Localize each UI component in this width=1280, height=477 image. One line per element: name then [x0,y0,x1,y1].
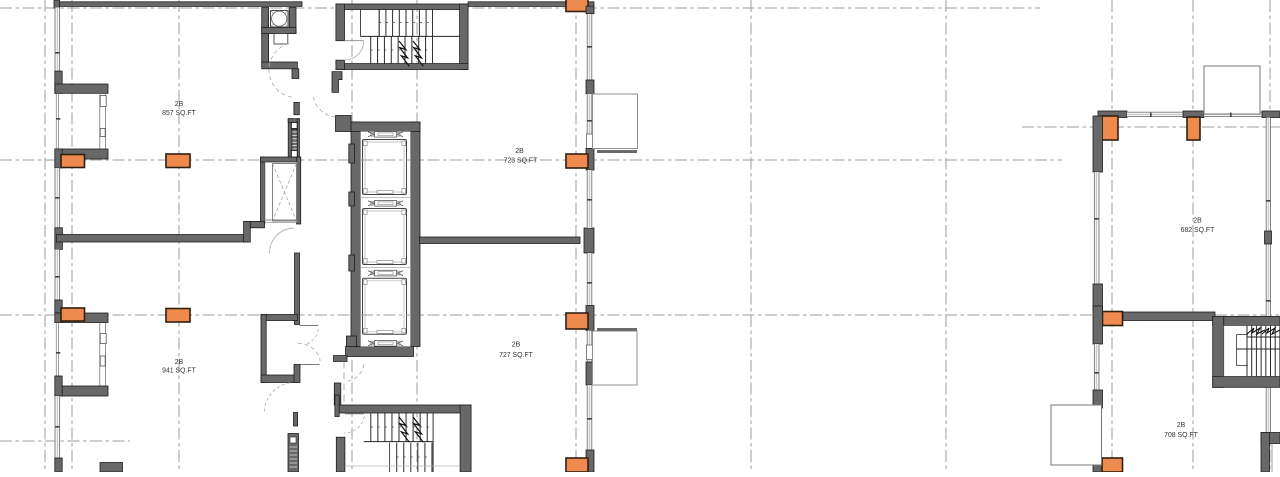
svg-text:727 SQ.FT: 727 SQ.FT [499,352,533,359]
svg-text:682 SQ.FT: 682 SQ.FT [1181,227,1215,234]
svg-text:2B: 2B [515,148,524,155]
svg-text:857 SQ.FT: 857 SQ.FT [162,110,196,117]
svg-text:941 SQ.FT: 941 SQ.FT [162,368,196,375]
svg-text:2B: 2B [1177,422,1186,429]
svg-text:2B: 2B [1193,218,1202,225]
svg-text:2B: 2B [175,359,184,366]
svg-text:723 SQ.FT: 723 SQ.FT [504,158,538,165]
svg-text:708 SQ.FT: 708 SQ.FT [1164,432,1198,439]
svg-text:2B: 2B [512,342,521,349]
svg-text:2B: 2B [175,101,184,108]
